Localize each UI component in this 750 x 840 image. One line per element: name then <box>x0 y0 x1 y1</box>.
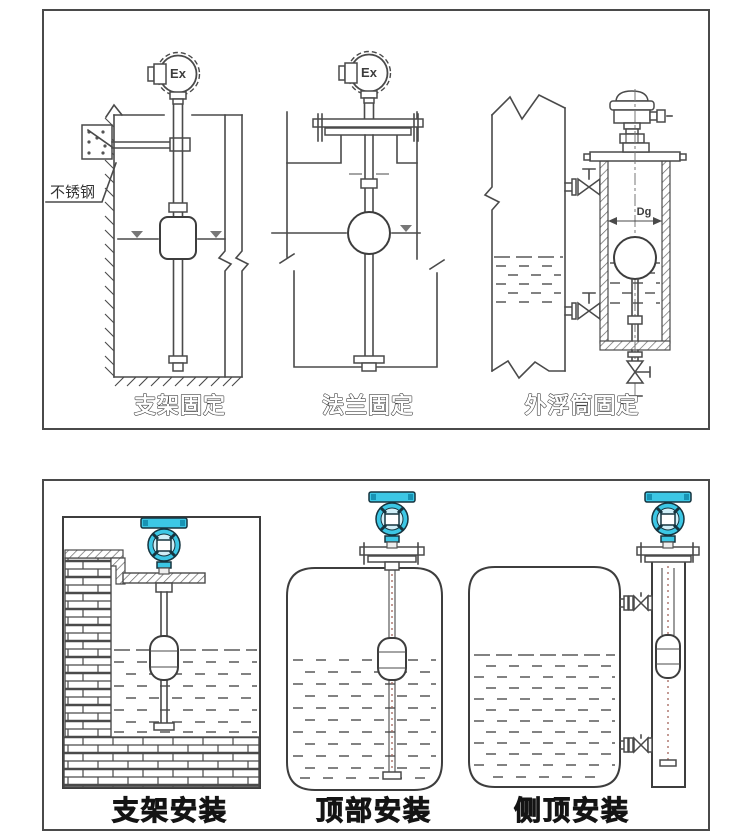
storage-tank <box>485 95 565 378</box>
lower-isolation-valve <box>565 293 604 319</box>
caption-bracket-installation: 支架安装 <box>112 796 228 826</box>
support-arm <box>112 138 190 151</box>
bracket-installation-drawing: 支架安装 <box>63 517 260 826</box>
head-stem <box>365 103 374 119</box>
ball-float <box>614 237 656 279</box>
wall-cap-plate <box>65 550 123 558</box>
caption-external-chamber-fixing: 外浮筒固定 <box>524 393 639 418</box>
fixing-methods-drawing: Ex 不锈钢 支架固定 <box>44 11 708 428</box>
caption-top-installation: 顶部安装 <box>316 795 432 826</box>
end-stop <box>660 760 676 766</box>
pipe-coupling <box>169 203 187 212</box>
installation-methods-panel: 支架安装 <box>42 479 710 831</box>
tank-roof <box>287 135 417 174</box>
caption-flange-fixing: 法兰固定 <box>322 393 414 418</box>
diagram-page: Ex 不锈钢 支架固定 <box>0 0 750 840</box>
float <box>656 635 680 678</box>
hex-nut <box>620 134 644 143</box>
ex-label: Ex <box>361 65 378 80</box>
ground-hatching <box>114 377 242 386</box>
brick-wall <box>65 558 111 737</box>
level-symbol <box>400 225 412 232</box>
end-stop <box>354 356 384 371</box>
upper-connection-valve <box>620 593 652 610</box>
spherical-float <box>348 212 390 254</box>
water-level <box>272 225 420 233</box>
lower-connection-valve <box>620 735 652 752</box>
mounting-flange <box>313 114 423 141</box>
stainless-steel-callout: 不锈钢 <box>46 163 116 202</box>
end-stop <box>383 772 401 779</box>
tank-wall-right <box>219 115 248 377</box>
external-chamber-fixing-drawing: Dg <box>485 89 686 418</box>
rod-coupling <box>156 583 172 592</box>
bracket-fixing-drawing: Ex 不锈钢 支架固定 <box>46 53 248 419</box>
junction-box-head <box>610 91 672 152</box>
flange-fixing-drawing: Ex 法兰固定 <box>272 52 444 419</box>
dg-label: Dg <box>637 206 652 218</box>
caption-bracket-fixing: 支架固定 <box>134 393 226 418</box>
tank-liquid <box>494 257 563 302</box>
mounting-plate <box>82 125 112 159</box>
smart-transmitter-head <box>645 492 691 548</box>
float <box>150 636 178 680</box>
float <box>160 217 196 259</box>
upper-isolation-valve <box>565 169 604 195</box>
float <box>378 638 406 680</box>
nozzle-coupling <box>385 562 399 570</box>
brick-floor <box>64 737 259 787</box>
smart-transmitter-head <box>369 492 415 548</box>
side-top-installation-drawing: 侧顶安装 <box>469 492 699 826</box>
ex-label: Ex <box>170 66 187 81</box>
caption-side-top-installation: 侧顶安装 <box>514 796 630 826</box>
end-stop <box>154 723 174 730</box>
stainless-steel-label: 不锈钢 <box>50 184 95 201</box>
drain-valve <box>627 350 650 396</box>
rod-coupling <box>361 179 377 188</box>
fixing-methods-panel: Ex 不锈钢 支架固定 <box>42 9 710 430</box>
level-symbol <box>131 231 143 238</box>
end-stop <box>169 356 187 371</box>
cable-gland <box>650 112 657 120</box>
top-installation-drawing: 顶部安装 <box>287 492 442 826</box>
installation-methods-drawing: 支架安装 <box>44 481 708 829</box>
level-symbol <box>210 231 222 238</box>
